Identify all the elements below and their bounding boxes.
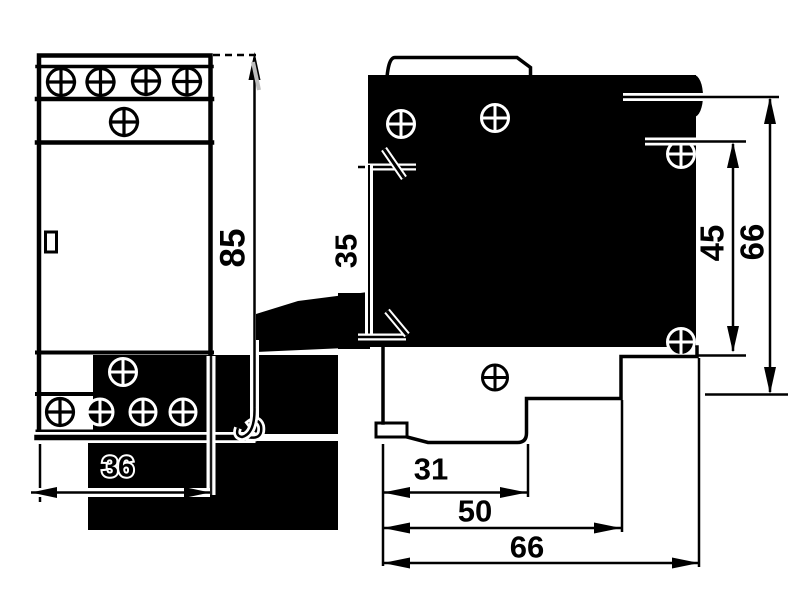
dim-label-45: 45 — [694, 225, 731, 262]
dim-label-66-right: 66 — [734, 224, 771, 261]
contactor-dimension-drawing: 85 36 35 45 — [0, 0, 800, 600]
arrowhead-left — [383, 523, 410, 534]
arrowhead-left — [383, 487, 410, 498]
front-window-detail — [46, 232, 57, 252]
arrowhead-down — [727, 326, 739, 353]
screw-head-icon — [170, 399, 196, 425]
screw-head-icon — [47, 399, 74, 426]
side-body-fill — [368, 75, 696, 347]
screw-head-icon — [133, 68, 160, 95]
arrowhead-right — [594, 523, 621, 534]
dim-label-31: 31 — [414, 452, 448, 487]
arrowhead-right — [500, 487, 527, 498]
screw-head-icon — [482, 105, 509, 132]
dimension-side-depth-inner: 31 — [383, 452, 527, 499]
dim-label-66-bottom: 66 — [510, 530, 544, 565]
dimension-side-depth-total: 66 — [383, 530, 699, 569]
arrowhead-down — [764, 367, 776, 394]
din-clip — [376, 423, 407, 437]
arrowhead-up — [727, 142, 739, 168]
dim-label-50: 50 — [458, 494, 492, 529]
technical-drawing-page: 85 36 35 45 — [0, 0, 800, 600]
screw-head-icon — [110, 359, 137, 386]
screw-head-icon — [388, 111, 415, 138]
arrowhead-left — [383, 558, 410, 569]
screw-head-icon — [87, 69, 114, 96]
screw-head-icon — [483, 365, 508, 390]
arrowhead-up — [764, 97, 776, 124]
dim-label-36: 36 — [102, 452, 134, 484]
front-terminal-screws-top — [48, 68, 201, 136]
screw-head-icon — [174, 68, 201, 95]
screw-head-icon — [48, 69, 75, 96]
side-base-profile — [376, 347, 697, 443]
dim-label-85: 85 — [214, 229, 253, 268]
screw-head-icon — [130, 399, 156, 425]
screw-head-icon — [668, 329, 695, 356]
dimension-side-depth-mid: 50 — [383, 494, 621, 534]
screw-head-icon — [87, 399, 113, 425]
screw-head-icon — [111, 109, 138, 136]
arrowhead-right — [672, 558, 699, 569]
dim-label-35: 35 — [329, 234, 364, 268]
